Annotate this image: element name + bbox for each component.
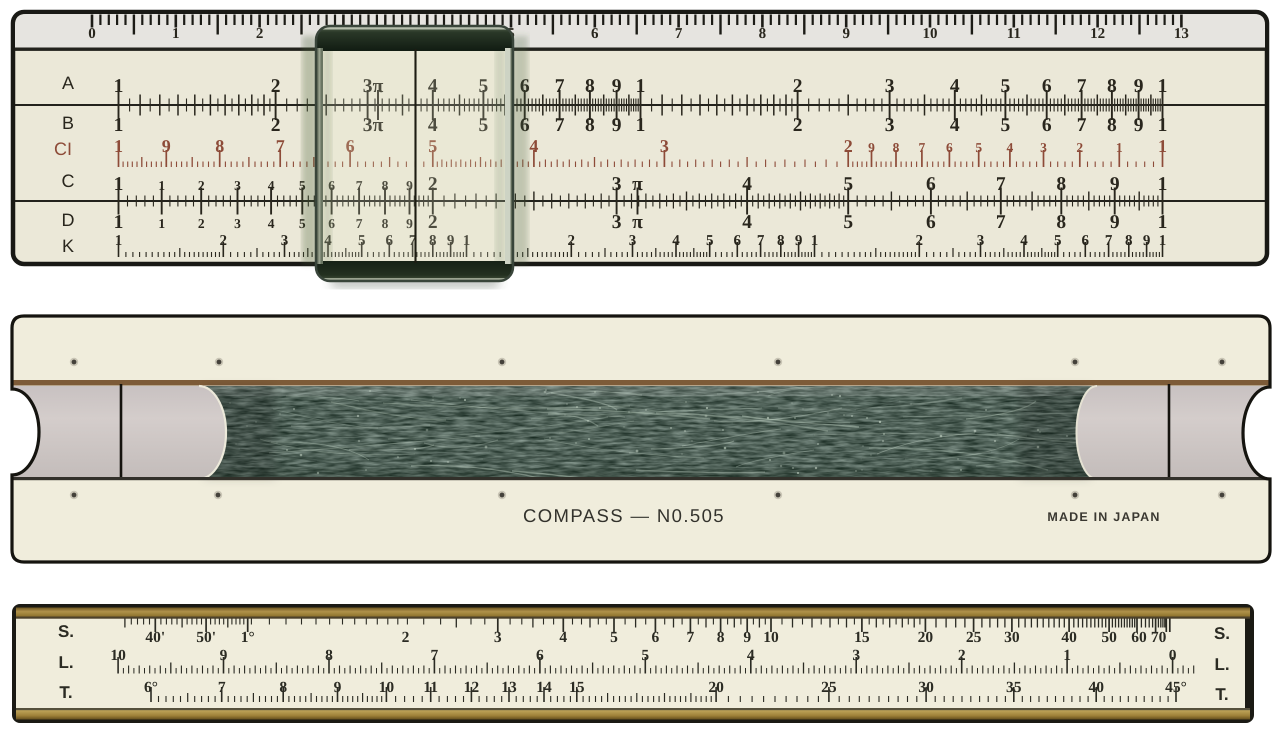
svg-text:L.: L. [58, 653, 73, 672]
svg-text:10: 10 [110, 647, 126, 664]
svg-text:7: 7 [1077, 115, 1087, 136]
svg-text:L.: L. [1214, 655, 1229, 674]
svg-text:2: 2 [844, 136, 853, 156]
svg-text:4: 4 [950, 76, 960, 97]
svg-text:K: K [62, 236, 74, 256]
svg-text:1: 1 [114, 76, 124, 97]
svg-text:1: 1 [1158, 212, 1168, 233]
svg-text:4: 4 [742, 212, 752, 233]
svg-text:5: 5 [641, 647, 649, 664]
svg-text:6: 6 [1042, 76, 1052, 97]
svg-text:8: 8 [1107, 76, 1117, 97]
svg-text:B: B [62, 113, 74, 133]
svg-text:A: A [62, 73, 74, 93]
svg-text:13: 13 [501, 679, 517, 696]
svg-text:9: 9 [1134, 115, 1144, 136]
svg-text:70: 70 [1151, 629, 1167, 646]
svg-text:40: 40 [1061, 629, 1077, 646]
svg-text:9: 9 [1110, 174, 1120, 195]
svg-text:3: 3 [1040, 140, 1047, 155]
svg-text:35: 35 [1006, 679, 1022, 696]
svg-text:1: 1 [1158, 115, 1168, 136]
svg-text:2: 2 [958, 647, 966, 664]
svg-text:5: 5 [975, 140, 982, 155]
svg-text:3: 3 [612, 212, 622, 233]
svg-text:π: π [632, 212, 643, 233]
svg-text:8: 8 [1056, 212, 1066, 233]
svg-text:4: 4 [529, 136, 538, 156]
svg-text:7: 7 [687, 629, 695, 646]
svg-text:8: 8 [215, 136, 224, 156]
svg-text:9: 9 [842, 26, 850, 42]
svg-text:T.: T. [59, 683, 72, 702]
svg-text:4: 4 [268, 216, 275, 231]
svg-text:4: 4 [1007, 140, 1014, 155]
svg-text:7: 7 [555, 76, 565, 97]
svg-text:4: 4 [559, 629, 567, 646]
svg-text:15: 15 [854, 629, 870, 646]
svg-text:6: 6 [1042, 115, 1052, 136]
svg-text:30: 30 [918, 679, 934, 696]
svg-text:40: 40 [1088, 679, 1104, 696]
svg-text:1: 1 [1158, 174, 1168, 195]
svg-text:10: 10 [763, 629, 779, 646]
svg-text:7: 7 [1105, 233, 1113, 249]
svg-text:7: 7 [675, 26, 683, 42]
svg-text:3: 3 [612, 174, 622, 195]
svg-text:30: 30 [1004, 629, 1020, 646]
svg-text:3: 3 [885, 115, 895, 136]
svg-text:1: 1 [114, 115, 124, 136]
svg-text:MADE IN JAPAN: MADE IN JAPAN [1047, 510, 1160, 524]
svg-text:9: 9 [743, 629, 751, 646]
svg-text:2: 2 [271, 76, 281, 97]
svg-text:1: 1 [1116, 140, 1123, 155]
svg-text:CI: CI [54, 139, 72, 159]
svg-text:6: 6 [536, 647, 544, 664]
svg-text:5: 5 [706, 233, 714, 249]
svg-text:3: 3 [494, 629, 502, 646]
svg-text:1: 1 [636, 115, 646, 136]
svg-text:8: 8 [279, 679, 287, 696]
svg-text:8: 8 [717, 629, 725, 646]
svg-text:2: 2 [568, 233, 576, 249]
svg-text:4: 4 [672, 233, 680, 249]
svg-text:9: 9 [1134, 76, 1144, 97]
svg-text:11: 11 [1007, 26, 1021, 42]
svg-text:9: 9 [162, 136, 171, 156]
svg-text:D: D [62, 210, 75, 230]
svg-text:6: 6 [591, 26, 599, 42]
svg-text:1: 1 [115, 233, 123, 249]
svg-text:7: 7 [218, 679, 226, 696]
svg-text:4: 4 [742, 174, 752, 195]
svg-text:20: 20 [918, 629, 934, 646]
svg-text:5: 5 [1001, 115, 1011, 136]
svg-text:1: 1 [114, 174, 124, 195]
svg-text:2: 2 [198, 178, 205, 193]
svg-text:3: 3 [629, 233, 637, 249]
svg-text:4: 4 [950, 115, 960, 136]
svg-text:9: 9 [612, 76, 622, 97]
svg-text:8: 8 [759, 26, 767, 42]
svg-text:5: 5 [610, 629, 618, 646]
svg-text:8: 8 [585, 76, 595, 97]
svg-text:3: 3 [660, 136, 669, 156]
svg-text:60: 60 [1131, 629, 1147, 646]
svg-text:8: 8 [893, 140, 900, 155]
svg-text:12: 12 [1090, 26, 1105, 42]
svg-text:2: 2 [916, 233, 924, 249]
svg-text:6: 6 [734, 233, 742, 249]
svg-text:7: 7 [757, 233, 765, 249]
svg-text:6: 6 [926, 174, 936, 195]
svg-text:9: 9 [220, 647, 228, 664]
svg-text:5: 5 [843, 212, 853, 233]
svg-text:3: 3 [852, 647, 860, 664]
svg-text:2: 2 [256, 26, 264, 42]
svg-text:7: 7 [996, 212, 1006, 233]
svg-text:7: 7 [919, 140, 926, 155]
svg-text:1: 1 [1158, 76, 1168, 97]
svg-text:5: 5 [843, 174, 853, 195]
svg-text:2: 2 [793, 76, 803, 97]
svg-text:5: 5 [1054, 233, 1062, 249]
svg-text:50: 50 [1101, 629, 1117, 646]
svg-text:15: 15 [569, 679, 585, 696]
svg-text:2: 2 [271, 115, 281, 136]
svg-text:9: 9 [612, 115, 622, 136]
svg-text:40': 40' [145, 629, 165, 646]
svg-text:1: 1 [1063, 647, 1071, 664]
svg-text:6°: 6° [144, 679, 158, 696]
svg-text:50': 50' [196, 629, 216, 646]
svg-text:4: 4 [1020, 233, 1028, 249]
svg-text:9: 9 [1110, 212, 1120, 233]
svg-text:1°: 1° [241, 629, 255, 646]
svg-text:8: 8 [325, 647, 333, 664]
svg-text:5: 5 [1001, 76, 1011, 97]
svg-text:10: 10 [923, 26, 938, 42]
svg-text:6: 6 [926, 212, 936, 233]
svg-text:3: 3 [234, 216, 241, 231]
svg-text:1: 1 [114, 136, 123, 156]
svg-text:25: 25 [966, 629, 982, 646]
svg-text:3: 3 [234, 178, 241, 193]
svg-text:1: 1 [811, 233, 819, 249]
svg-text:1: 1 [172, 26, 180, 42]
svg-text:9: 9 [795, 233, 803, 249]
svg-text:2: 2 [220, 233, 228, 249]
svg-text:S.: S. [1214, 624, 1230, 643]
svg-text:7: 7 [431, 647, 439, 664]
svg-text:9: 9 [334, 679, 342, 696]
svg-text:3: 3 [977, 233, 985, 249]
svg-text:4: 4 [747, 647, 755, 664]
svg-text:9: 9 [868, 140, 875, 155]
svg-text:0: 0 [88, 26, 96, 42]
svg-text:3: 3 [885, 76, 895, 97]
svg-text:7: 7 [276, 136, 285, 156]
svg-text:8: 8 [1056, 174, 1066, 195]
svg-text:1: 1 [158, 178, 165, 193]
svg-text:12: 12 [464, 679, 480, 696]
svg-text:20: 20 [708, 679, 724, 696]
svg-text:6: 6 [652, 629, 660, 646]
svg-text:2: 2 [793, 115, 803, 136]
svg-text:14: 14 [536, 679, 552, 696]
svg-text:2: 2 [1076, 140, 1083, 155]
svg-text:8: 8 [1107, 115, 1117, 136]
svg-text:8: 8 [777, 233, 785, 249]
svg-text:1: 1 [114, 212, 124, 233]
svg-text:2: 2 [198, 216, 205, 231]
svg-text:1: 1 [636, 76, 646, 97]
svg-text:1: 1 [1158, 136, 1167, 156]
svg-text:6: 6 [946, 140, 953, 155]
svg-text:8: 8 [585, 115, 595, 136]
svg-text:9: 9 [1143, 233, 1151, 249]
svg-text:10: 10 [379, 679, 395, 696]
svg-text:4: 4 [268, 178, 275, 193]
svg-text:13: 13 [1174, 26, 1189, 42]
svg-text:7: 7 [1077, 76, 1087, 97]
svg-text:45°: 45° [1165, 679, 1187, 696]
svg-text:25: 25 [821, 679, 837, 696]
svg-text:1: 1 [158, 216, 165, 231]
svg-text:COMPASS — N0.505: COMPASS — N0.505 [523, 505, 725, 526]
svg-text:3: 3 [281, 233, 289, 249]
svg-text:C: C [62, 171, 75, 191]
svg-text:7: 7 [555, 115, 565, 136]
svg-text:11: 11 [423, 679, 438, 696]
svg-text:8: 8 [1125, 233, 1133, 249]
svg-text:2: 2 [402, 629, 410, 646]
svg-text:π: π [632, 174, 643, 195]
svg-text:7: 7 [996, 174, 1006, 195]
svg-text:S.: S. [58, 622, 74, 641]
svg-text:1: 1 [1159, 233, 1167, 249]
svg-text:6: 6 [1082, 233, 1090, 249]
svg-text:0: 0 [1169, 647, 1177, 664]
svg-text:T.: T. [1215, 685, 1228, 704]
